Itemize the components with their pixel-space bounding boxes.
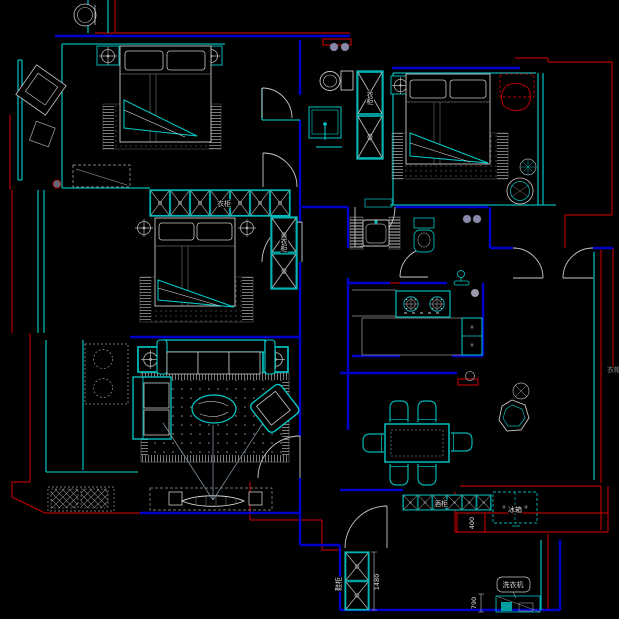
double-bed[interactable] [406, 74, 490, 164]
plant-small[interactable] [520, 159, 536, 175]
window-living-balcony[interactable] [46, 340, 138, 472]
fridge[interactable]: 冰箱 [493, 492, 537, 526]
counter-strip-left[interactable] [350, 217, 363, 249]
lamp-left[interactable] [135, 219, 153, 237]
mirror[interactable] [365, 199, 392, 207]
dim-1480[interactable]: 1480 [373, 574, 381, 591]
bedroom-2 [391, 74, 536, 204]
counter-top[interactable] [352, 290, 396, 316]
door-bedroom1[interactable] [263, 153, 297, 187]
floorplan-drawing: 衣柜 衣 [0, 0, 619, 619]
cloakroom-label[interactable]: 衣帽 [607, 365, 619, 374]
base-cabinet[interactable] [462, 318, 482, 355]
balcony-table-set[interactable] [85, 344, 128, 404]
bedroom-master [16, 4, 222, 188]
speaker-right [249, 492, 262, 505]
wine-cabinet-label[interactable]: 酒柜 [434, 499, 448, 508]
burner-icon [430, 297, 444, 311]
balcony-armchair[interactable] [16, 65, 66, 115]
fridge-label[interactable]: 冰箱 [508, 505, 522, 514]
decor-circle[interactable] [513, 383, 529, 399]
wall-red-bottom-center[interactable] [250, 482, 342, 550]
stove[interactable] [396, 291, 450, 317]
coffee-table[interactable] [192, 395, 236, 423]
wardrobe-row-label[interactable]: 衣柜 [217, 199, 231, 208]
living-room [48, 340, 301, 511]
door-bath1[interactable] [262, 88, 292, 118]
sofa-three-seat[interactable] [157, 340, 275, 374]
wardrobe-row[interactable]: 衣柜 [150, 190, 290, 216]
double-bed[interactable] [120, 46, 211, 142]
toilet[interactable] [320, 71, 353, 91]
bathroom-1 [309, 43, 353, 140]
washing-machine[interactable]: 洗衣机 [496, 577, 540, 612]
hookup-circles[interactable] [463, 215, 481, 223]
plant-large[interactable] [499, 400, 529, 431]
loveseat[interactable] [133, 377, 171, 439]
walls-windows-cyan[interactable] [18, 0, 594, 610]
dining-chair[interactable] [418, 464, 436, 485]
window-left-mid[interactable] [38, 190, 44, 333]
double-bed[interactable] [155, 218, 235, 307]
dining-room [363, 372, 475, 486]
lamp-right[interactable] [238, 219, 256, 237]
dining-chair[interactable] [418, 401, 436, 422]
balcony-side-table[interactable] [30, 121, 56, 147]
cad-floorplan: 衣柜 衣 [0, 0, 619, 619]
storage-boxes[interactable] [48, 487, 114, 511]
sink[interactable] [363, 220, 389, 246]
floor-mirror[interactable] [53, 165, 130, 188]
washer-hookups[interactable] [330, 43, 349, 51]
window-balcony-top[interactable] [18, 60, 22, 180]
burner-icon [404, 297, 418, 311]
bedroom-middle: 衣柜 衣柜 [135, 190, 297, 322]
bottom-zone: 酒柜 400 冰箱 鞋柜 1480 洗衣机 790 [334, 492, 540, 612]
nightstand-left[interactable] [97, 46, 119, 65]
dining-chair[interactable] [451, 433, 472, 451]
door-entry-double[interactable] [513, 248, 593, 278]
door-stop [471, 289, 479, 297]
kitchen [352, 289, 482, 355]
wardrobe-hall[interactable]: 衣柜 [357, 71, 383, 159]
red-marker [53, 180, 61, 188]
door-laundry[interactable] [345, 506, 387, 548]
walls-red[interactable] [10, 0, 619, 610]
tv-unit[interactable] [150, 488, 272, 510]
dining-chair[interactable] [390, 464, 408, 485]
shoe-cabinet-label[interactable]: 鞋柜 [334, 577, 343, 591]
vanity-sink[interactable] [309, 107, 341, 140]
wardrobe-side[interactable]: 衣柜 [271, 217, 297, 289]
wine-cabinet[interactable]: 酒柜 [403, 495, 491, 510]
speaker-left [169, 492, 182, 505]
dim-790[interactable]: 790 [470, 597, 478, 609]
dining-table[interactable] [385, 424, 449, 462]
dining-chair[interactable] [363, 434, 384, 452]
stool-round[interactable] [507, 178, 533, 204]
wardrobe-hall-label[interactable]: 衣柜 [366, 90, 374, 106]
balcony-basin[interactable] [74, 4, 96, 26]
bathroom-2 [350, 199, 481, 285]
dim-400[interactable]: 400 [468, 517, 476, 529]
wardrobe-side-label[interactable]: 衣柜 [280, 237, 288, 253]
floor-drain[interactable] [454, 271, 469, 286]
dresser-dashed[interactable] [500, 74, 534, 111]
wall-entry-cyan[interactable] [541, 252, 594, 610]
dining-chair[interactable] [390, 401, 408, 422]
toilet[interactable] [414, 218, 434, 252]
washing-machine-label[interactable]: 洗衣机 [503, 580, 524, 589]
wall-red-top-right[interactable] [515, 58, 612, 248]
wall-red-left[interactable] [10, 115, 140, 513]
counter-strip-right[interactable] [389, 217, 400, 249]
wall-red-top[interactable] [95, 0, 350, 33]
